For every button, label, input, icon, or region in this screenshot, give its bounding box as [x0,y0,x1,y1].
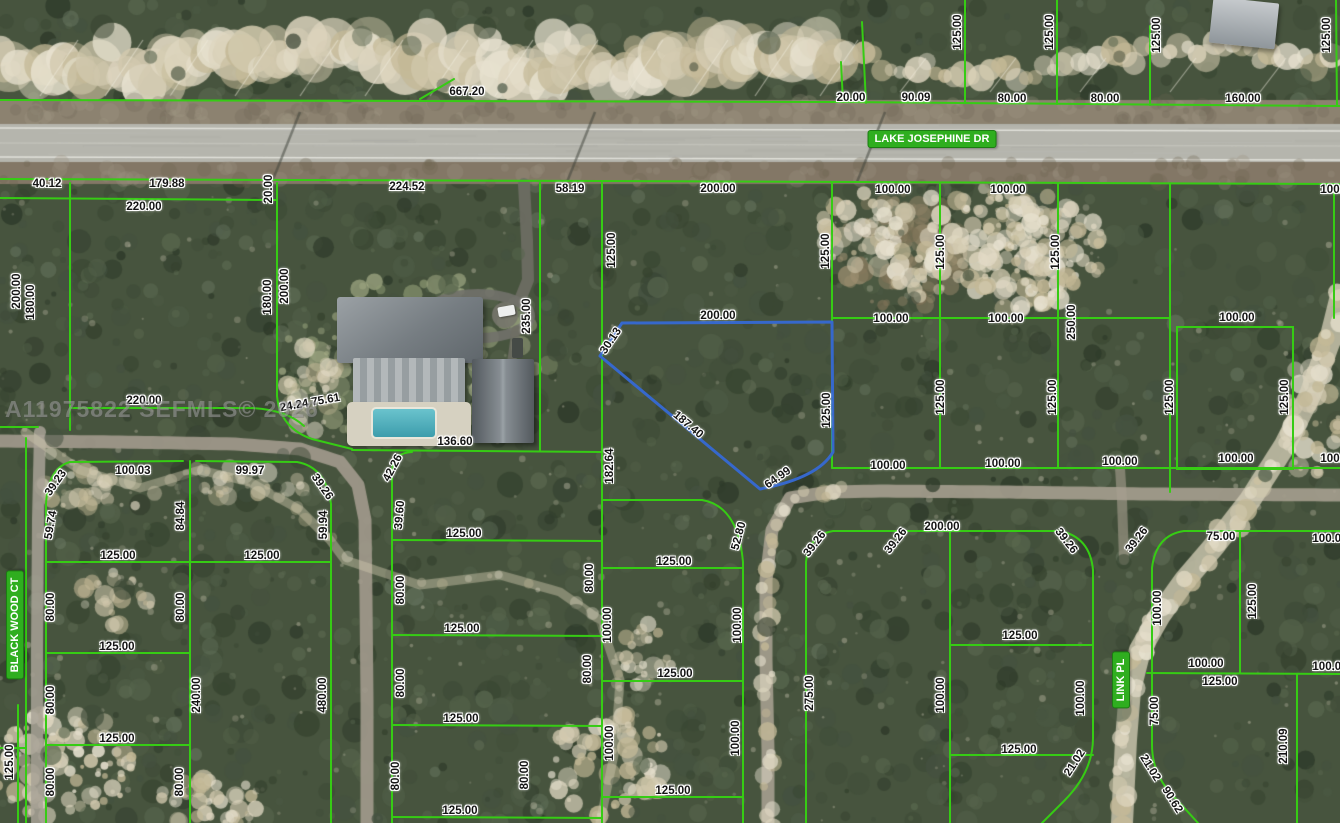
street-label: LAKE JOSEPHINE DR [868,130,997,148]
street-label: LINK PL [1112,652,1130,709]
parcel-map[interactable]: 667.2020.0090.0980.0080.00160.00125.0012… [0,0,1340,823]
street-label: BLACK WOOD CT [6,571,24,680]
mls-watermark: A11975822 SEFMLS© 2026 [5,396,319,423]
